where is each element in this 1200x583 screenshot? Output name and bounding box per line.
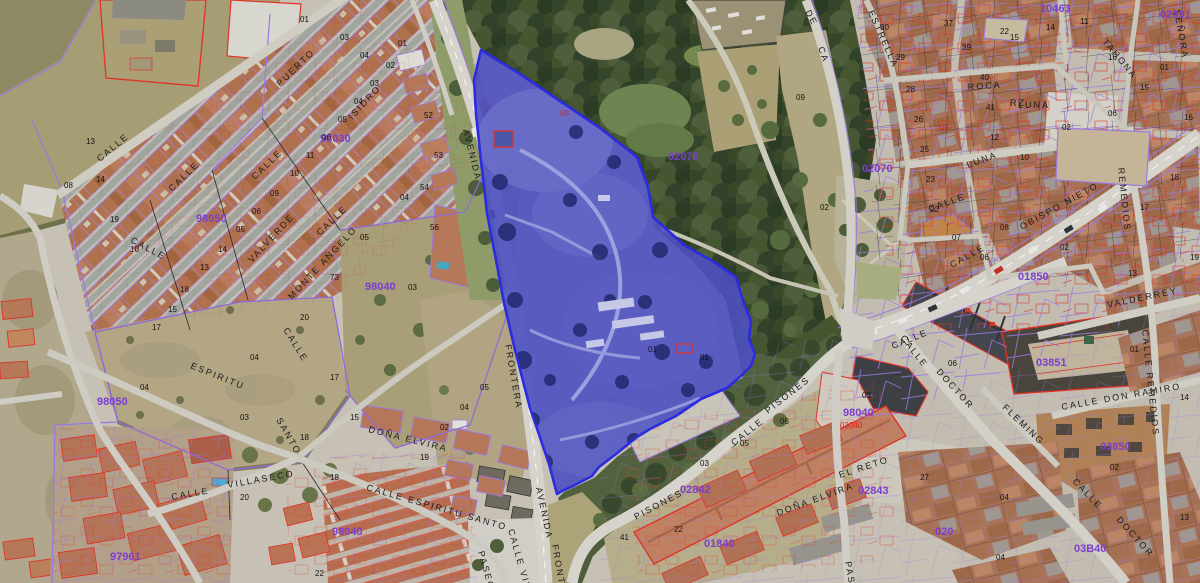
svg-text:54: 54	[420, 183, 429, 192]
svg-text:19: 19	[420, 453, 429, 462]
svg-text:28: 28	[906, 85, 915, 94]
svg-text:06: 06	[322, 133, 331, 142]
svg-text:08: 08	[64, 181, 73, 190]
svg-text:22: 22	[1000, 27, 1009, 36]
svg-text:98050: 98050	[196, 213, 227, 225]
svg-text:09: 09	[796, 93, 805, 102]
svg-text:98050: 98050	[97, 396, 128, 408]
svg-text:22: 22	[315, 569, 324, 578]
svg-text:06: 06	[980, 253, 989, 262]
svg-text:20: 20	[300, 313, 309, 322]
svg-text:97961: 97961	[110, 551, 141, 563]
svg-text:23: 23	[926, 175, 935, 184]
svg-text:98040: 98040	[365, 281, 396, 293]
svg-text:10463: 10463	[1040, 3, 1071, 15]
svg-text:05: 05	[360, 233, 369, 242]
svg-text:10: 10	[130, 245, 139, 254]
svg-text:02843: 02843	[858, 485, 889, 497]
svg-text:29: 29	[896, 53, 905, 62]
svg-text:01: 01	[300, 15, 309, 24]
svg-text:03040: 03040	[840, 421, 863, 430]
svg-text:73: 73	[330, 273, 339, 282]
svg-text:02: 02	[386, 61, 395, 70]
svg-text:04: 04	[1000, 493, 1009, 502]
svg-text:020: 020	[935, 526, 953, 538]
svg-text:98040: 98040	[332, 526, 363, 538]
svg-text:03851: 03851	[1036, 357, 1067, 369]
svg-text:01: 01	[398, 39, 407, 48]
svg-text:RZ: RZ	[1010, 98, 1026, 108]
svg-text:04: 04	[140, 383, 149, 392]
svg-text:05: 05	[480, 383, 489, 392]
svg-text:02070: 02070	[668, 151, 699, 163]
svg-text:03: 03	[370, 79, 379, 88]
svg-text:08: 08	[1000, 223, 1009, 232]
svg-text:03: 03	[240, 413, 249, 422]
svg-text:98040: 98040	[843, 407, 874, 419]
svg-text:01: 01	[1130, 345, 1139, 354]
svg-text:20: 20	[240, 493, 249, 502]
svg-text:13: 13	[1180, 513, 1189, 522]
svg-text:02842: 02842	[680, 484, 711, 496]
svg-text:04: 04	[354, 97, 363, 106]
svg-text:03B40: 03B40	[1074, 543, 1106, 555]
svg-text:22: 22	[674, 525, 683, 534]
svg-text:18: 18	[330, 473, 339, 482]
svg-text:02: 02	[1060, 243, 1069, 252]
svg-text:06: 06	[780, 417, 789, 426]
svg-text:02091: 02091	[1160, 9, 1191, 21]
svg-text:37: 37	[944, 19, 953, 28]
svg-text:27: 27	[920, 473, 929, 482]
svg-text:02: 02	[1062, 123, 1071, 132]
svg-text:15: 15	[1010, 33, 1019, 42]
svg-text:53: 53	[434, 151, 443, 160]
svg-text:02: 02	[440, 423, 449, 432]
svg-text:18: 18	[180, 285, 189, 294]
svg-text:03850: 03850	[1100, 441, 1131, 453]
svg-text:17: 17	[1140, 203, 1149, 212]
svg-text:19: 19	[110, 215, 119, 224]
svg-text:02070: 02070	[862, 163, 893, 175]
svg-text:26: 26	[914, 115, 923, 124]
svg-text:15: 15	[1140, 83, 1149, 92]
svg-text:01: 01	[700, 353, 709, 362]
svg-text:05: 05	[740, 439, 749, 448]
svg-text:04: 04	[400, 193, 409, 202]
svg-text:15: 15	[350, 413, 359, 422]
svg-text:11: 11	[306, 151, 315, 160]
svg-text:04: 04	[460, 403, 469, 412]
svg-text:40: 40	[980, 73, 989, 82]
svg-text:17: 17	[152, 323, 161, 332]
svg-text:10: 10	[1020, 153, 1029, 162]
svg-text:05: 05	[338, 115, 347, 124]
svg-text:03: 03	[408, 283, 417, 292]
svg-text:11: 11	[1080, 17, 1089, 26]
svg-text:17: 17	[330, 373, 339, 382]
svg-text:39: 39	[962, 43, 971, 52]
svg-text:04: 04	[996, 553, 1005, 562]
svg-text:14: 14	[1180, 393, 1189, 402]
svg-text:10: 10	[290, 169, 299, 178]
svg-text:14: 14	[218, 245, 227, 254]
svg-text:22: 22	[930, 205, 939, 214]
svg-text:08: 08	[560, 109, 569, 118]
svg-text:03: 03	[862, 391, 871, 400]
svg-text:16: 16	[1108, 53, 1117, 62]
svg-text:41: 41	[986, 103, 995, 112]
svg-text:13: 13	[86, 137, 95, 146]
svg-text:01: 01	[1160, 63, 1169, 72]
svg-text:19: 19	[1190, 253, 1199, 262]
svg-text:03: 03	[340, 33, 349, 42]
svg-text:15: 15	[168, 305, 177, 314]
svg-text:18: 18	[300, 433, 309, 442]
svg-text:13: 13	[1128, 269, 1137, 278]
svg-text:14: 14	[96, 175, 105, 184]
svg-text:07: 07	[952, 233, 961, 242]
svg-text:04: 04	[360, 51, 369, 60]
svg-text:14: 14	[1046, 23, 1055, 32]
svg-text:09: 09	[270, 189, 279, 198]
svg-text:09: 09	[940, 123, 949, 132]
svg-text:16: 16	[1184, 113, 1193, 122]
svg-text:01: 01	[648, 345, 657, 354]
svg-text:13: 13	[200, 263, 209, 272]
svg-text:02: 02	[820, 203, 829, 212]
svg-text:12: 12	[990, 133, 999, 142]
svg-text:04: 04	[250, 353, 259, 362]
svg-text:41: 41	[620, 533, 629, 542]
svg-text:03: 03	[700, 459, 709, 468]
svg-text:52: 52	[424, 111, 433, 120]
svg-text:30: 30	[880, 23, 889, 32]
svg-text:56: 56	[430, 223, 439, 232]
svg-text:06: 06	[252, 207, 261, 216]
svg-text:05: 05	[236, 225, 245, 234]
svg-text:01840: 01840	[704, 538, 735, 550]
svg-text:01850: 01850	[1018, 271, 1049, 283]
svg-text:02: 02	[1110, 463, 1119, 472]
svg-text:06: 06	[1108, 109, 1117, 118]
svg-text:18: 18	[1170, 173, 1179, 182]
svg-text:06: 06	[948, 359, 957, 368]
svg-text:25: 25	[920, 145, 929, 154]
